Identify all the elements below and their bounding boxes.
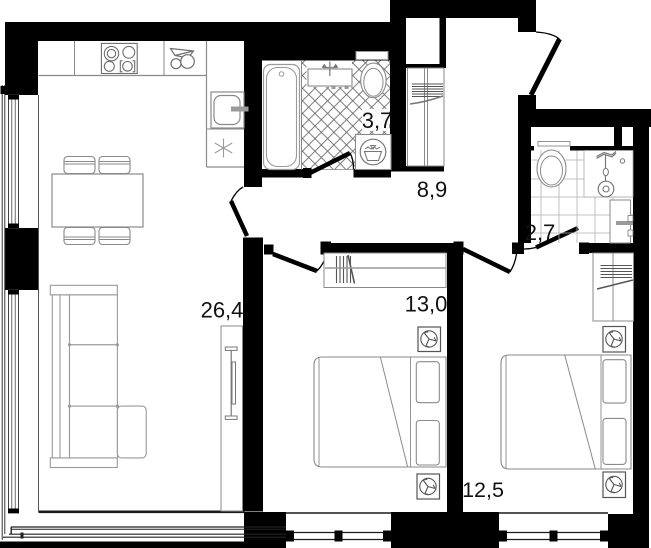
svg-text:13,0: 13,0 (405, 292, 448, 317)
svg-text:2,7: 2,7 (525, 220, 556, 245)
svg-text:8,9: 8,9 (417, 177, 448, 202)
svg-text:26,4: 26,4 (201, 298, 244, 323)
svg-text:3,7: 3,7 (362, 108, 393, 133)
svg-text:12,5: 12,5 (462, 478, 504, 502)
